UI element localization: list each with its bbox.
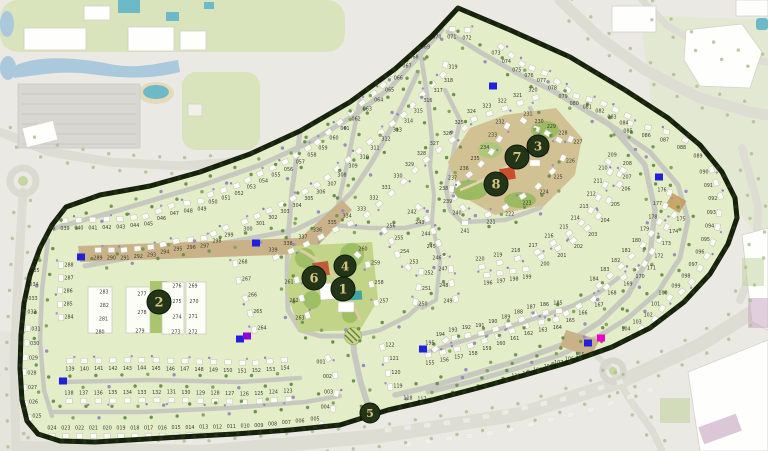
tree: [652, 83, 655, 86]
lot-number: 158: [469, 351, 478, 357]
lot-number: 194: [436, 332, 445, 338]
lot-number: 307: [327, 182, 336, 188]
entrance-marker-purple: [243, 333, 251, 340]
lot-number: 145: [152, 366, 161, 372]
tree: [464, 120, 467, 123]
tree: [193, 239, 196, 242]
house: [464, 332, 471, 338]
hedge-tree: [527, 36, 531, 40]
hedge-tree: [722, 174, 726, 178]
lot-number: 238: [439, 186, 448, 192]
lot-number: 329: [405, 162, 414, 168]
tree: [46, 298, 49, 301]
house: [552, 316, 559, 322]
tree: [249, 173, 252, 176]
lot-number: 250: [418, 302, 427, 308]
lot-number: 027: [28, 385, 37, 391]
house: [330, 405, 336, 412]
lot-number: 188: [514, 310, 523, 316]
house: [385, 370, 391, 377]
tree: [678, 228, 681, 231]
lot-number: 237: [448, 175, 457, 181]
lot-number: 124: [269, 390, 278, 396]
tree: [317, 392, 320, 395]
hedge-tree: [734, 204, 738, 208]
tree: [557, 160, 560, 163]
tree: [48, 273, 51, 276]
lot-number: 184: [589, 277, 598, 283]
lot-number: 268: [238, 260, 247, 266]
hedge-tree: [247, 431, 251, 435]
lot-number: 131: [167, 390, 176, 396]
lot-number: 063: [363, 107, 372, 113]
tree: [638, 286, 641, 289]
tree: [338, 169, 341, 172]
tree: [107, 385, 110, 388]
hedge-tree: [250, 151, 254, 155]
lot-number: 263: [295, 316, 304, 322]
lot-number: 084: [619, 121, 628, 127]
hedge-tree: [507, 27, 511, 31]
hedge-tree: [25, 417, 29, 421]
tree: [388, 422, 391, 425]
lot-number: 054: [259, 178, 268, 184]
poi-marker-3: 3: [527, 135, 549, 157]
lot-number: 315: [414, 108, 423, 114]
lot-number: 201: [557, 253, 566, 259]
entrance-marker-blue: [489, 83, 497, 90]
hedge-tree: [345, 421, 349, 425]
hedge-tree: [732, 194, 736, 198]
house: [90, 434, 96, 439]
tree: [45, 324, 48, 327]
lot-number: 103: [633, 320, 642, 326]
hedge-tree: [302, 427, 306, 431]
tree: [341, 209, 344, 212]
lot-number: 010: [241, 424, 250, 430]
lot-number: 242: [407, 210, 416, 216]
tree: [676, 205, 679, 208]
tree: [548, 174, 551, 177]
tree: [461, 213, 464, 216]
tree: [429, 81, 432, 84]
ghost-house: [486, 430, 494, 436]
hedge-tree: [669, 119, 673, 123]
lot-number: 182: [611, 258, 620, 264]
tree: [363, 425, 366, 428]
tree: [645, 292, 648, 295]
lot-number: 230: [535, 119, 544, 125]
tree: [651, 145, 654, 148]
hedge-tree: [71, 439, 75, 443]
hedge-tree: [269, 429, 273, 433]
hedge-tree: [723, 246, 727, 250]
lot-number: 021: [89, 426, 98, 432]
tree: [285, 236, 288, 239]
hedge-tree: [159, 436, 163, 440]
lot-number: 314: [404, 119, 413, 125]
lot-number: 146: [166, 366, 175, 372]
tree: [439, 375, 442, 378]
lot-number: 281: [99, 317, 108, 323]
lot-number: 212: [587, 191, 596, 197]
tree: [352, 379, 355, 382]
hedge-tree: [517, 32, 521, 36]
lot-number: 331: [382, 185, 391, 191]
hedge-tree: [568, 360, 572, 364]
tree: [85, 211, 88, 214]
tree: [402, 88, 405, 91]
lot-number: 218: [511, 248, 520, 254]
lot-number: 016: [158, 425, 167, 431]
lot-number: 059: [318, 146, 327, 152]
poi-number: 6: [309, 272, 318, 287]
lot-number: 241: [460, 229, 469, 235]
hedge-tree: [658, 319, 662, 323]
hedge-tree: [409, 403, 413, 407]
hedge-tree: [576, 60, 580, 64]
tree: [616, 391, 619, 394]
tree: [539, 395, 542, 398]
house: [138, 358, 144, 363]
tree: [300, 166, 303, 169]
hedge-tree: [102, 192, 106, 196]
tree: [749, 324, 752, 327]
tree: [445, 156, 448, 159]
tree: [465, 410, 468, 413]
tree: [414, 418, 417, 421]
hedge-tree: [420, 400, 424, 404]
lot-number: 179: [640, 226, 649, 232]
tree: [7, 315, 10, 318]
lot-number: 056: [284, 167, 293, 173]
hedge-tree: [280, 137, 284, 141]
tree: [764, 204, 767, 207]
tree: [280, 255, 283, 258]
tree: [379, 232, 382, 235]
hedge-tree: [398, 405, 402, 409]
lot-number: 058: [307, 153, 316, 159]
tree: [22, 432, 25, 435]
lot-number: 127: [225, 391, 234, 397]
tree: [29, 199, 32, 202]
tree: [443, 209, 446, 212]
tree: [100, 220, 103, 223]
lot-number: 322: [498, 98, 507, 104]
tree: [26, 251, 29, 254]
lot-number: 074: [502, 59, 511, 65]
tree: [455, 384, 458, 387]
hedge-tree: [209, 166, 213, 170]
ghost-house: [443, 420, 451, 426]
tree: [629, 47, 632, 50]
tree: [304, 136, 307, 139]
lot-number: 244: [421, 232, 430, 238]
lot-number: 160: [496, 341, 505, 347]
lot-number: 099: [671, 284, 680, 290]
lot-number: 231: [523, 112, 532, 118]
hedge-tree: [148, 437, 152, 441]
tree: [727, 338, 730, 341]
tree: [705, 327, 708, 330]
building: [128, 27, 174, 51]
lot-number: 290: [107, 256, 116, 262]
tree: [660, 273, 663, 276]
lot-number: 228: [558, 131, 567, 137]
tree: [292, 243, 295, 246]
tree: [516, 402, 519, 405]
ghost-house: [404, 425, 412, 431]
tree: [626, 309, 629, 312]
hedge-tree: [236, 432, 240, 436]
tree: [35, 363, 38, 366]
lot-number: 089: [693, 154, 702, 160]
tree: [405, 77, 408, 80]
tree: [753, 283, 756, 286]
lot-number: 079: [559, 94, 568, 100]
ghost-house: [424, 422, 432, 428]
tree: [563, 89, 566, 92]
hedge-tree: [156, 182, 160, 186]
lot-number: 072: [462, 36, 471, 42]
lot-number: 163: [538, 328, 547, 334]
hedge-tree: [22, 407, 26, 411]
tree: [743, 100, 746, 103]
lot-number: 240: [452, 211, 461, 217]
lot-number: 310: [360, 155, 369, 161]
tree: [567, 19, 570, 22]
tree: [353, 231, 356, 234]
tree: [349, 109, 352, 112]
tree: [372, 336, 375, 339]
hedge-tree: [324, 424, 328, 428]
lot-number: 283: [99, 290, 108, 296]
hedge-tree: [329, 111, 333, 115]
tree: [156, 257, 159, 260]
poi-number: 4: [341, 259, 349, 273]
lot-number: 325: [455, 120, 464, 126]
lot-number: 294: [160, 250, 169, 256]
tree: [51, 247, 54, 250]
lot-number: 222: [505, 212, 514, 218]
tree: [673, 253, 676, 256]
lot-number: 083: [607, 115, 616, 121]
lot-number: 306: [316, 189, 325, 195]
tree: [669, 184, 672, 187]
tree: [684, 190, 687, 193]
tree: [579, 340, 582, 343]
lot-number: 039: [60, 226, 69, 232]
hedge-tree: [62, 208, 66, 212]
house: [496, 260, 503, 266]
hedge-tree: [496, 23, 500, 27]
pool: [118, 0, 140, 13]
tree: [489, 361, 492, 364]
lot-number: 051: [221, 195, 230, 201]
tree: [680, 363, 683, 366]
hedge-tree: [675, 305, 679, 309]
tree: [690, 30, 693, 33]
tree: [452, 194, 455, 197]
lot-number: 015: [172, 425, 181, 431]
tree: [390, 111, 393, 114]
lot-number: 225: [554, 175, 563, 181]
tree: [657, 235, 660, 238]
hedge-tree: [20, 319, 24, 323]
tree: [535, 354, 538, 357]
hedge-tree: [214, 433, 218, 437]
lot-number: 098: [681, 274, 690, 280]
lot-number: 093: [707, 210, 716, 216]
hedge-tree: [258, 430, 262, 434]
house: [225, 360, 232, 365]
tree: [601, 369, 604, 372]
lot-number: 040: [74, 226, 83, 232]
lot-number: 299: [224, 233, 233, 239]
tree: [675, 95, 678, 98]
house: [117, 216, 124, 222]
small-pond: [0, 11, 14, 37]
tree: [650, 18, 653, 21]
lot-number: 219: [493, 253, 502, 259]
lot-number: 154: [280, 366, 289, 372]
tree: [209, 174, 212, 177]
hedge-tree: [486, 19, 490, 23]
lot-number: 220: [475, 257, 484, 263]
lot-number: 323: [482, 104, 491, 110]
lot-number: 309: [349, 164, 358, 170]
tree: [284, 316, 287, 319]
tree: [146, 373, 149, 376]
tree: [162, 404, 165, 407]
lot-number: 295: [173, 247, 182, 253]
hedge-tree: [441, 395, 445, 399]
hedge-tree: [31, 265, 35, 269]
tree: [514, 221, 517, 224]
tree: [500, 213, 503, 216]
tree: [631, 413, 634, 416]
lot-number: 335: [328, 220, 337, 226]
tree: [123, 416, 126, 419]
tree: [270, 227, 273, 230]
hedge-tree: [558, 363, 562, 367]
tree: [347, 184, 350, 187]
hedge-tree: [586, 66, 590, 70]
hedge-tree: [124, 188, 128, 192]
tree: [654, 182, 657, 185]
tree: [110, 405, 113, 408]
house: [159, 241, 166, 247]
poi-number: 5: [366, 407, 374, 420]
lot-number: 140: [80, 366, 89, 372]
tree: [627, 136, 630, 139]
lot-number: 043: [116, 225, 125, 231]
lot-number: 255: [394, 236, 403, 242]
hedge-tree: [698, 282, 702, 286]
tree: [176, 414, 179, 417]
tree: [283, 203, 286, 206]
tree: [352, 158, 355, 161]
lot-number: 022: [75, 426, 84, 432]
lot-number: 327: [430, 141, 439, 147]
lot-number: 196: [483, 281, 492, 287]
hedge-tree: [71, 202, 75, 206]
lot-number: 139: [65, 367, 74, 373]
tree: [94, 374, 97, 377]
hedge-tree: [280, 429, 284, 433]
tree: [369, 173, 372, 176]
lot-number: 102: [644, 312, 653, 318]
lot-number: 313: [393, 128, 402, 134]
entrance-marker-blue: [584, 340, 592, 347]
hedge-tree: [300, 128, 304, 132]
lot-number: 202: [574, 244, 583, 250]
tree: [209, 154, 212, 157]
house: [124, 398, 130, 403]
tree: [461, 47, 464, 50]
tree: [200, 190, 203, 193]
lot-number: 339: [268, 248, 277, 254]
house: [24, 339, 30, 346]
hedge-tree: [126, 438, 130, 442]
tree: [589, 15, 592, 18]
lot-number: 008: [268, 422, 277, 428]
tree: [657, 374, 660, 377]
tree: [457, 335, 460, 338]
lot-number: 198: [509, 277, 518, 283]
hedge-tree: [19, 341, 23, 345]
tree: [659, 210, 662, 213]
hedge-tree: [313, 425, 317, 429]
tree: [337, 427, 340, 430]
lot-number: 088: [677, 145, 686, 151]
house: [332, 372, 338, 379]
tree: [416, 70, 419, 73]
tree: [66, 161, 69, 164]
tree: [414, 382, 417, 385]
entrance-marker-blue: [655, 174, 663, 181]
lot-number: 318: [444, 78, 453, 84]
lot-number: 181: [622, 248, 631, 254]
lot-number: 214: [571, 215, 580, 221]
lot-number: 235: [471, 156, 480, 162]
lot-number: 320: [528, 88, 537, 94]
tree: [172, 373, 175, 376]
lot-number: 011: [227, 424, 236, 430]
hedge-tree: [712, 265, 716, 269]
building: [24, 28, 86, 50]
tree: [188, 402, 191, 405]
tree: [514, 353, 517, 356]
tree: [579, 293, 582, 296]
tree: [694, 49, 697, 52]
hedge-tree: [578, 356, 582, 360]
lot-number: 301: [256, 221, 265, 227]
tree: [81, 386, 84, 389]
lot-number: 155: [425, 361, 434, 367]
tree: [257, 157, 260, 160]
tree: [455, 433, 458, 436]
tree: [720, 58, 723, 61]
lot-number: 186: [540, 302, 549, 308]
poi-number: 7: [512, 151, 521, 166]
house: [187, 237, 194, 243]
lot-number: 289: [93, 256, 102, 262]
tree: [669, 166, 672, 169]
house: [154, 398, 160, 403]
house: [57, 301, 62, 308]
tree: [511, 362, 514, 365]
